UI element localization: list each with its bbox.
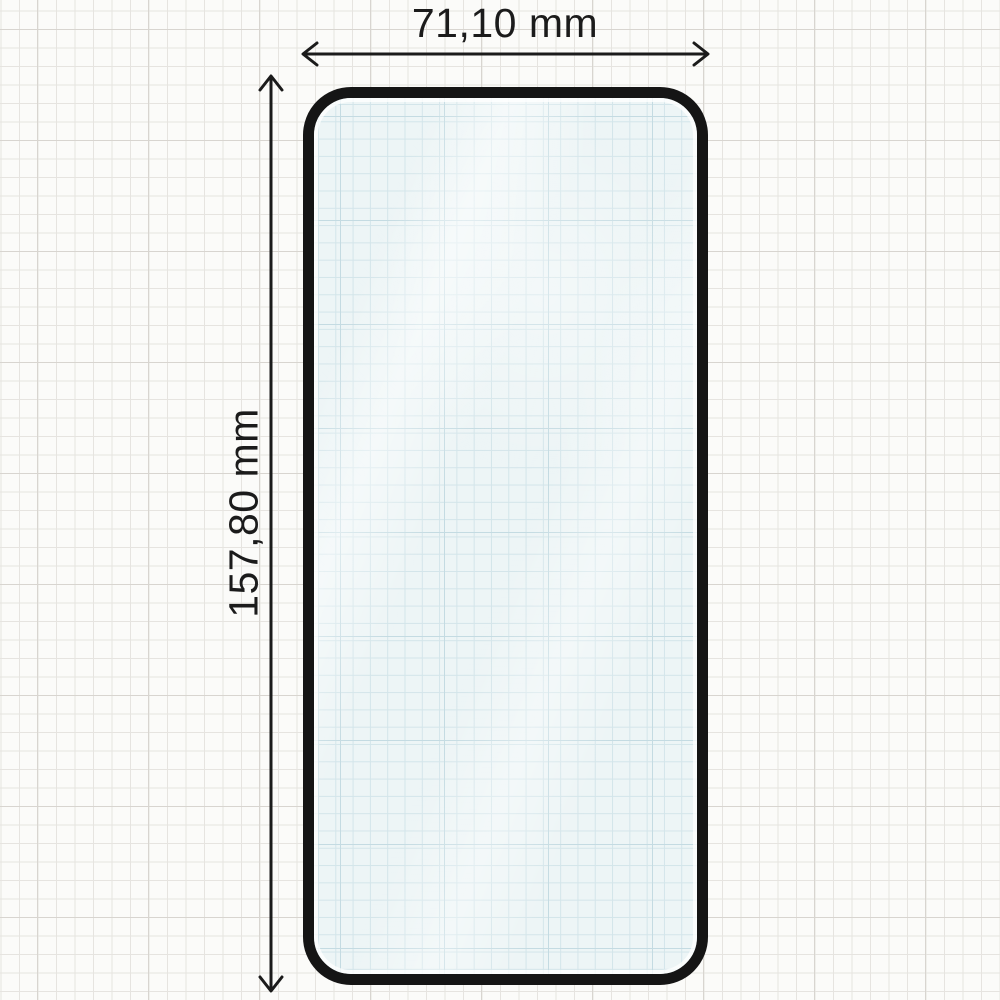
width-dimension-label: 71,10 mm — [412, 1, 598, 46]
glass-surface — [314, 98, 697, 974]
width-dimension-arrow-icon — [303, 43, 708, 65]
height-dimension-label: 157,80 mm — [221, 408, 266, 618]
screen-protector-frame — [303, 87, 708, 985]
graph-paper-background: 71,10 mm 157,80 mm — [0, 0, 1000, 1000]
